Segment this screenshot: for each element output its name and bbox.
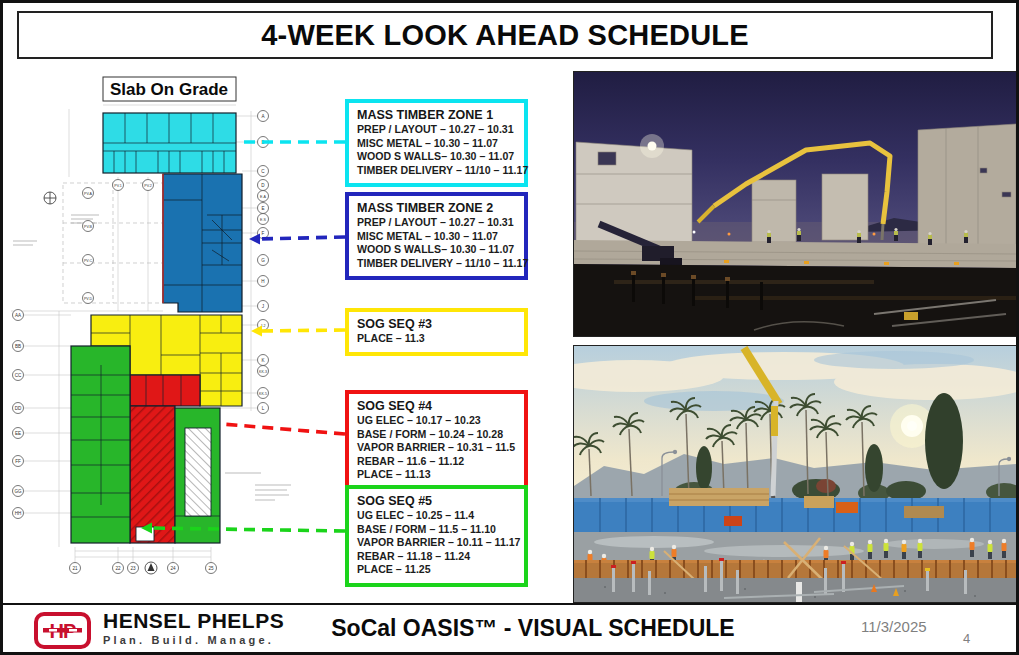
grid-bubble-G: G [258,255,269,266]
company-block: HENSEL PHELPS Plan. Build. Manage. [103,609,284,646]
svg-text:PV.A: PV.A [84,192,92,196]
svg-text:L: L [262,406,265,411]
zone-mass-timber-1 [103,113,236,173]
callout-line: MISC METAL – 10.30 – 11.07 [357,230,516,244]
callout-line: VAPOR BARRIER – 10.11 – 11.17 [357,536,516,550]
callout-title: SOG SEQ #3 [357,317,516,332]
svg-text:BB: BB [15,344,21,349]
photo-day-slab [573,345,1017,603]
callout-line: PLACE – 11.3 [357,332,516,346]
plan-title: Slab On Grade [103,77,236,101]
grid-bubble-BB: BB [13,341,24,352]
callout-title: SOG SEQ #4 [357,399,516,414]
callout-mass-timber-zone-2: MASS TIMBER ZONE 2PREP / LAYOUT – 10.27 … [345,192,528,280]
grid-bubble-CC: CC [13,370,24,381]
svg-text:E.S: E.S [260,218,266,222]
svg-text:E.A: E.A [260,195,266,199]
callout-line: WOOD S WALLS– 10.30 – 11.07 [357,150,516,164]
grid-bubble-22: 22 [113,563,124,574]
photo-night-pour [573,71,1017,337]
svg-text:22: 22 [115,566,121,571]
callout-mass-timber-zone-1: MASS TIMBER ZONE 1PREP / LAYOUT – 10.27 … [345,99,528,187]
grid-bubble-B: B [258,137,269,148]
callout-line: REBAR – 11.6 – 11.12 [357,455,516,469]
svg-text:GG: GG [14,489,22,494]
company-tagline: Plan. Build. Manage. [103,634,284,646]
callout-line: BASE / FORM – 11.5 – 11.10 [357,523,516,537]
callout-line: TIMBER DELIVERY – 11/10 – 11.17 [357,164,516,178]
grid-bubble-F: F [258,228,269,239]
svg-text:AA: AA [15,313,22,318]
svg-text:E: E [261,206,264,211]
callout-line: UG ELEC – 10.17 – 10.23 [357,414,516,428]
grid-bubble-E: E [258,203,269,214]
svg-text:KK.5: KK.5 [259,392,267,396]
callout-line: MISC METAL – 10.30 – 11.07 [357,137,516,151]
grid-bubble-PV.1: PV.1 [113,180,124,191]
svg-text:KK.3: KK.3 [259,370,267,374]
callout-sog-seq-3: SOG SEQ #3PLACE – 11.3 [345,308,528,356]
svg-text:F: F [262,231,265,236]
grid-bubble-D: D [258,180,269,191]
svg-text:PV.B: PV.B [84,225,92,229]
svg-text:FF: FF [15,459,21,464]
callout-sog-seq-4: SOG SEQ #4UG ELEC – 10.17 – 10.23BASE / … [345,390,528,492]
svg-text:PV.1: PV.1 [114,184,121,188]
company-name: HENSEL PHELPS [103,609,284,632]
callout-sog-seq-5: SOG SEQ #5UG ELEC – 10.25 – 11.4BASE / F… [345,485,528,587]
svg-text:CC: CC [15,373,22,378]
grid-bubble-K: K [258,355,269,366]
callout-line: UG ELEC – 10.25 – 11.4 [357,509,516,523]
grid-bubble-AA: AA [13,310,24,321]
grid-bubble-DD: DD [13,403,24,414]
page-number: 4 [963,631,970,646]
svg-text:DD: DD [15,406,22,411]
callout-line: VAPOR BARRIER – 10.31 – 11.5 [357,441,516,455]
wet-slab [574,532,1016,560]
floor-plan: Slab On Grade ABCDE.AEE.SFGHJJ.2KKK.3KK.… [11,65,345,605]
callout-line: PLACE – 11.13 [357,468,516,482]
svg-text:25: 25 [208,566,214,571]
callout-title: MASS TIMBER ZONE 1 [357,108,516,123]
svg-text:H: H [261,279,264,284]
zone-mass-timber-2 [163,174,242,312]
callout-line: WOOD S WALLS– 10.30 – 11.07 [357,243,516,257]
grid-bubble-PV.B: PV.B [83,221,94,232]
floodlight [648,142,657,151]
grid-bubble-25: 25 [206,563,217,574]
svg-text:24: 24 [170,566,176,571]
hensel-phelps-logo: HP [33,610,93,652]
svg-text:21: 21 [72,566,78,571]
grid-bubble-E.A: E.A [258,191,269,202]
svg-text:Slab On Grade: Slab On Grade [110,80,228,99]
callout-line: PLACE – 11.25 [357,563,516,577]
svg-text:HH: HH [15,511,22,516]
footer-date: 11/3/2025 [861,618,927,635]
grid-bubble-EE: EE [13,428,24,439]
svg-text:B: B [261,140,264,145]
title-bar: 4-WEEK LOOK AHEAD SCHEDULE [17,11,993,59]
callout-title: MASS TIMBER ZONE 2 [357,201,516,216]
grid-bubble-HH: HH [13,508,24,519]
grid-bubble-FF: FF [13,456,24,467]
grid-bubble-L: L [258,403,269,414]
callout-line: REBAR – 11.18 – 11.24 [357,550,516,564]
svg-text:J.2: J.2 [261,324,266,328]
project-title: SoCal OASIS™ - VISUAL SCHEDULE [303,615,763,642]
grid-bubble-PV.C: PV.C [83,255,94,266]
grid-bubble-GG: GG [13,486,24,497]
callout-line: PREP / LAYOUT – 10.27 – 10.31 [357,123,516,137]
callout-title: SOG SEQ #5 [357,494,516,509]
grid-bubble-KK.3: KK.3 [258,366,269,377]
grid-bubble-KK.5: KK.5 [258,388,269,399]
svg-text:PV.C: PV.C [84,259,92,263]
svg-text:G: G [261,258,265,263]
grid-bubble-PV.A: PV.A [83,188,94,199]
grid-bubble-21: 21 [70,563,81,574]
footer: HP HENSEL PHELPS Plan. Build. Manage. So… [3,605,1019,655]
grid-bubble-H: H [258,276,269,287]
svg-text:PV.D: PV.D [84,297,92,301]
svg-text:PV.2: PV.2 [144,184,151,188]
foreground-formwork [574,264,1016,336]
grid-bubble-J: J [258,301,269,312]
grid-bubble-23: 23 [128,563,139,574]
callout-line: BASE / FORM – 10.24 – 10.28 [357,428,516,442]
grid-bubble-PV.D: PV.D [83,293,94,304]
callout-line: TIMBER DELIVERY – 11/10 – 11.17 [357,257,516,271]
grid-bubble-E.S: E.S [258,214,269,225]
grid-bubble-A: A [258,111,269,122]
svg-text:J: J [262,304,264,309]
page-title: 4-WEEK LOOK AHEAD SCHEDULE [261,19,748,52]
slide: 4-WEEK LOOK AHEAD SCHEDULE [0,0,1019,655]
grid-bubble-PV.2: PV.2 [143,180,154,191]
construction-fence [574,498,1016,532]
grid-bubble-24: 24 [168,563,179,574]
svg-text:23: 23 [130,566,136,571]
callout-line: PREP / LAYOUT – 10.27 – 10.31 [357,216,516,230]
grid-bubble-C: C [258,166,269,177]
svg-text:EE: EE [15,431,21,436]
floor-plan-svg: Slab On Grade ABCDE.AEE.SFGHJJ.2KKK.3KK.… [11,65,345,605]
grid-bubble-J.2: J.2 [258,320,269,331]
